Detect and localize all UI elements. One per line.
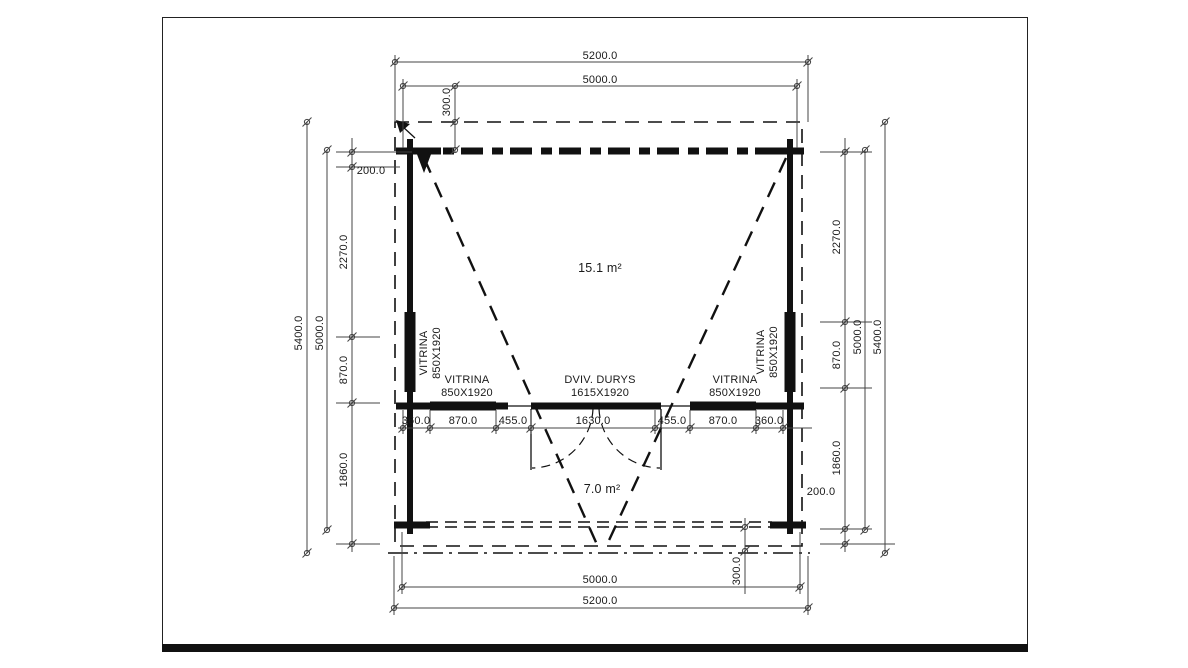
label-mid-left-window: VITRINA 850X1920 <box>441 374 493 400</box>
dim-left-chain-2: 1860.0 <box>338 453 350 488</box>
dim-front-chain-2: 455.0 <box>499 415 528 427</box>
dim-front-chain-3: 1630.0 <box>576 415 611 427</box>
dim-bottom-inner: 5000.0 <box>583 574 618 586</box>
dim-right-chain-0: 2270.0 <box>831 220 843 255</box>
mid-right-window-size: 850X1920 <box>709 387 761 400</box>
dim-right-chain-2: 1860.0 <box>831 441 843 476</box>
floor-plan-canvas: 5200.0 5000.0 300.0 200.0 5400.0 5000.0 … <box>0 0 1188 668</box>
left-wall-window-size: 850X1920 <box>431 327 444 379</box>
left-wall-window-name: VITRINA <box>418 331 430 376</box>
room-area-terrace: 7.0 m² <box>584 482 621 496</box>
dim-top-outer: 5200.0 <box>583 50 618 62</box>
mid-left-window-name: VITRINA <box>445 374 490 386</box>
dim-front-chain-6: 360.0 <box>755 415 784 427</box>
dim-front-chain-1: 870.0 <box>449 415 478 427</box>
dim-front-chain-4: 455.0 <box>658 415 687 427</box>
dim-top-inner: 5000.0 <box>583 74 618 86</box>
right-wall-window-size: 850X1920 <box>768 326 781 378</box>
right-wall-window-name: VITRINA <box>755 330 767 375</box>
plan-linework <box>0 0 1188 668</box>
dim-left-wall-to-wall: 5000.0 <box>314 316 326 351</box>
dim-front-chain-5: 870.0 <box>709 415 738 427</box>
dim-front-chain-0: 360.0 <box>402 415 431 427</box>
dim-right-overall: 5400.0 <box>872 320 884 355</box>
label-right-wall-window: VITRINA 850X1920 <box>755 326 781 378</box>
dim-bottom-roof-overhang: 300.0 <box>731 557 743 586</box>
dim-right-bottom-offset: 200.0 <box>807 486 836 498</box>
label-mid-right-window: VITRINA 850X1920 <box>709 374 761 400</box>
dim-bottom-outer: 5200.0 <box>583 595 618 607</box>
door-size: 1615X1920 <box>564 387 635 400</box>
dim-left-chain-0: 2270.0 <box>338 235 350 270</box>
dim-left-overall: 5400.0 <box>293 316 305 351</box>
dim-right-wall-to-wall: 5000.0 <box>852 320 864 355</box>
mid-right-window-name: VITRINA <box>713 374 758 386</box>
room-area-main: 15.1 m² <box>578 261 622 275</box>
terrace-edge <box>426 522 772 527</box>
dim-top-roof-overhang: 300.0 <box>441 88 453 117</box>
label-left-wall-window: VITRINA 850X1920 <box>418 327 444 379</box>
dim-left-chain-1: 870.0 <box>338 356 350 385</box>
dim-right-chain-1: 870.0 <box>831 341 843 370</box>
door-name: DVIV. DURYS <box>564 374 635 386</box>
mid-left-window-size: 850X1920 <box>441 387 493 400</box>
dim-left-top-offset: 200.0 <box>357 165 386 177</box>
label-door: DVIV. DURYS 1615X1920 <box>564 374 635 400</box>
